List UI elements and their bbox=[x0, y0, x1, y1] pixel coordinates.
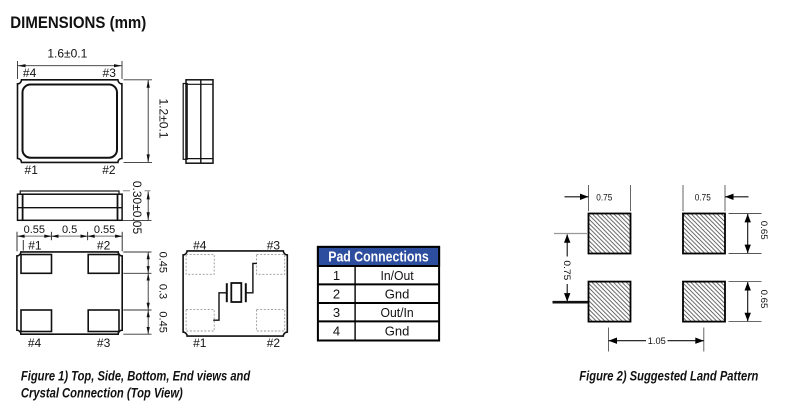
svg-text:0.75: 0.75 bbox=[596, 192, 612, 203]
svg-text:1.2±0.1: 1.2±0.1 bbox=[156, 99, 170, 139]
svg-text:#1: #1 bbox=[193, 336, 207, 350]
svg-text:1: 1 bbox=[333, 268, 340, 283]
svg-text:#4: #4 bbox=[28, 336, 42, 350]
svg-text:#3: #3 bbox=[103, 66, 117, 80]
svg-text:In/Out: In/Out bbox=[381, 268, 415, 283]
svg-text:4: 4 bbox=[333, 324, 340, 339]
svg-text:Gnd: Gnd bbox=[385, 324, 410, 339]
svg-text:0.45: 0.45 bbox=[157, 311, 169, 332]
svg-text:Out/In: Out/In bbox=[381, 305, 414, 320]
svg-text:1.6±0.1: 1.6±0.1 bbox=[47, 46, 87, 60]
svg-text:#2: #2 bbox=[267, 336, 281, 350]
svg-text:0.55: 0.55 bbox=[94, 224, 115, 236]
svg-text:3: 3 bbox=[333, 305, 340, 320]
svg-text:0.65: 0.65 bbox=[758, 290, 769, 309]
svg-text:0.3: 0.3 bbox=[157, 284, 169, 299]
svg-text:Figure 2) Suggested Land Patte: Figure 2) Suggested Land Pattern bbox=[579, 368, 758, 383]
svg-text:#2: #2 bbox=[97, 238, 111, 252]
svg-text:0.55: 0.55 bbox=[24, 224, 45, 236]
svg-text:0.75: 0.75 bbox=[695, 192, 711, 203]
svg-text:Figure 1) Top, Side, Bottom, E: Figure 1) Top, Side, Bottom, End views a… bbox=[21, 368, 251, 383]
svg-text:2: 2 bbox=[333, 286, 340, 301]
svg-text:0.5: 0.5 bbox=[62, 224, 77, 236]
svg-text:0.45: 0.45 bbox=[157, 252, 169, 273]
svg-text:0.30±0.05: 0.30±0.05 bbox=[130, 181, 144, 235]
svg-text:DIMENSIONS (mm): DIMENSIONS (mm) bbox=[10, 14, 146, 32]
svg-text:#2: #2 bbox=[102, 163, 116, 177]
svg-text:#3: #3 bbox=[97, 336, 111, 350]
svg-text:Gnd: Gnd bbox=[385, 286, 410, 301]
svg-text:#1: #1 bbox=[25, 163, 39, 177]
svg-text:#1: #1 bbox=[28, 238, 42, 252]
svg-text:Pad Connections: Pad Connections bbox=[328, 250, 429, 266]
svg-text:0.65: 0.65 bbox=[758, 221, 769, 240]
svg-text:#4: #4 bbox=[23, 66, 37, 80]
svg-text:0.75: 0.75 bbox=[561, 260, 572, 280]
svg-text:1.05: 1.05 bbox=[648, 336, 666, 346]
svg-text:Crystal Connection (Top View): Crystal Connection (Top View) bbox=[21, 386, 183, 401]
